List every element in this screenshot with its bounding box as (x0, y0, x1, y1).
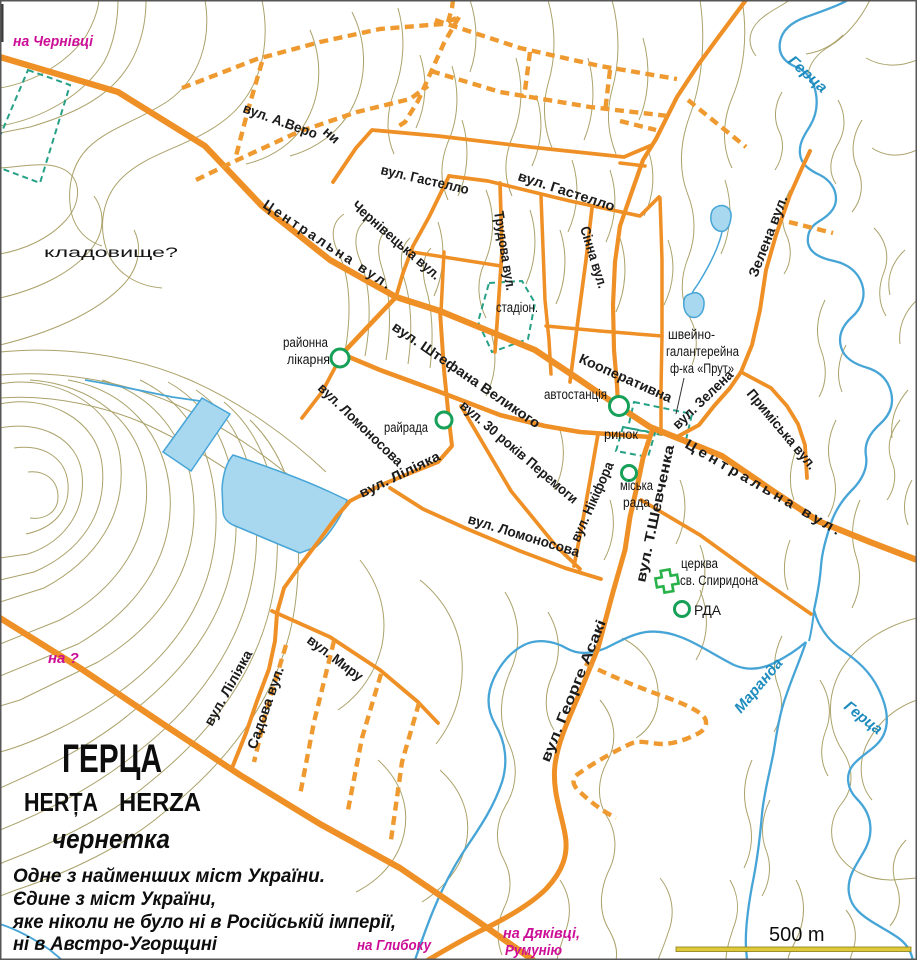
svg-text:міська: міська (620, 478, 653, 493)
svg-text:св. Спиридона: св. Спиридона (680, 573, 758, 588)
svg-text:Одне з найменших міст України.: Одне з найменших міст України. (13, 866, 325, 887)
svg-text:лікарня: лікарня (287, 352, 330, 367)
svg-text:ГЕРЦА: ГЕРЦА (62, 737, 162, 781)
svg-text:ринок: ринок (604, 427, 638, 442)
svg-text:на Дяківці,: на Дяківці, (503, 925, 580, 942)
svg-text:РДА: РДА (694, 603, 721, 618)
svg-text:500 m: 500 m (769, 924, 825, 946)
svg-text:ні в Австро-Угорщині: ні в Австро-Угорщині (13, 934, 218, 955)
svg-text:яке ніколи не було ні в Російс: яке ніколи не було ні в Російській імпер… (12, 912, 396, 933)
svg-text:чернетка: чернетка (52, 824, 170, 854)
svg-text:церква: церква (681, 556, 718, 571)
svg-text:рада: рада (623, 495, 650, 510)
svg-text:HERZA: HERZA (119, 787, 201, 817)
svg-text:HERȚA: HERȚA (24, 787, 98, 817)
svg-text:на ?: на ? (48, 650, 79, 667)
svg-text:ф-ка «Прут»: ф-ка «Прут» (670, 361, 734, 376)
svg-text:районна: районна (283, 335, 328, 350)
svg-text:швейно-: швейно- (668, 327, 715, 342)
svg-text:на Чернівці: на Чернівці (13, 33, 94, 50)
svg-text:кладовище?: кладовище? (44, 245, 178, 260)
svg-text:Єдине з міст України,: Єдине з міст України, (13, 889, 216, 910)
svg-text:стадіон.: стадіон. (496, 300, 538, 315)
svg-text:галантерейна: галантерейна (666, 344, 739, 359)
svg-text:райрада: райрада (384, 420, 428, 435)
svg-text:автостанція: автостанція (544, 387, 607, 402)
svg-text:на Глибоку: на Глибоку (357, 937, 432, 954)
svg-text:Румунію: Румунію (505, 942, 562, 959)
